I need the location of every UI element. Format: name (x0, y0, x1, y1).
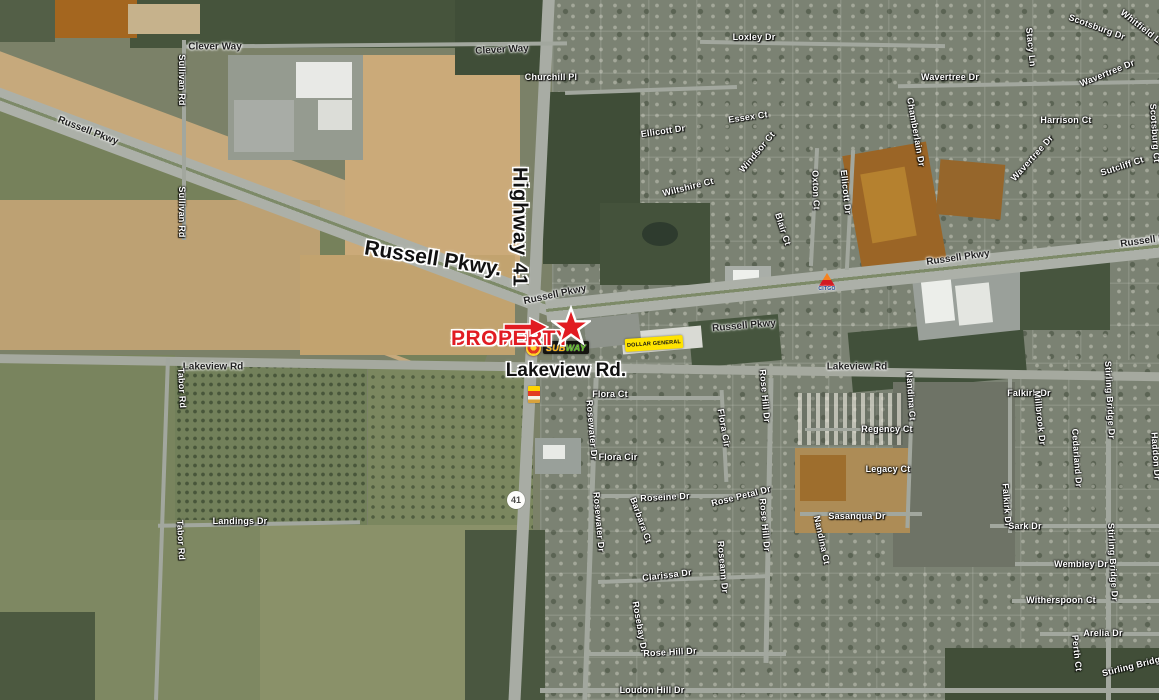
route-41-shield-number: 41 (511, 495, 521, 505)
street-label: Rose Hill Dr (758, 369, 773, 423)
street-label: Wavertree Dr (1009, 133, 1055, 183)
street-label: Oxton Ct (810, 170, 821, 210)
street-label: Flora Ct (592, 389, 628, 399)
street-label: Whitfield Ln (1119, 7, 1159, 48)
street-label: Russell Pkwy (926, 248, 991, 268)
street-label: Falkirk Dr (1007, 388, 1051, 398)
street-label: Lakeview Rd (183, 362, 244, 373)
street-label: Sullivan Rd (177, 186, 187, 237)
street-label: Perth Ct (1070, 634, 1084, 671)
street-label: Flora Cir (716, 408, 733, 448)
subject-arrow-icon (503, 317, 549, 337)
street-label: Chamberlain Dr (905, 97, 927, 168)
street-label: Ellicott Dr (839, 169, 854, 215)
street-label: Russell Pkwy (712, 318, 777, 335)
street-label: Flora Cir (599, 452, 638, 462)
street-label: Scotsburg Dr (1067, 12, 1126, 42)
street-label: Rosewater Dr (584, 399, 599, 460)
street-label: Tabor Rd (176, 368, 188, 409)
street-label: Essex Ct (728, 109, 769, 124)
citgo-triangle-icon (819, 273, 835, 286)
street-label: Ellicott Dr (640, 123, 686, 139)
street-label: Haddon Dr (1149, 432, 1159, 480)
street-label: Sark Dr (1008, 521, 1041, 531)
street-label: Wiltshire Ct (661, 176, 714, 198)
street-label: Clarissa Dr (642, 567, 693, 583)
subject-star-icon (551, 305, 591, 347)
citgo-logo: CITGO (812, 273, 842, 292)
lakeview-rd-annotation: Lakeview Rd. (506, 360, 626, 382)
street-label: Churchill Pl (525, 72, 577, 82)
street-label: Witherspoon Ct (1026, 595, 1096, 605)
street-label: Sasanqua Dr (828, 511, 885, 521)
route-41-shield: 41 (507, 491, 525, 509)
street-label: Rose Hill Dr (758, 498, 773, 552)
street-label: Sullivan Rd (177, 54, 187, 105)
street-label: Cedarland Dr (1070, 428, 1084, 487)
street-label: Landings Dr (213, 516, 268, 526)
street-label: Lakeview Rd (827, 362, 888, 373)
street-label: Stacy Ln (1024, 27, 1038, 67)
street-label: Tabor Rd (175, 520, 187, 561)
street-label: Regency Ct (861, 424, 913, 434)
street-label: Russell Pkwy (56, 114, 120, 147)
street-label: Nandina Ct (904, 371, 917, 421)
street-label: Harrison Ct (1040, 115, 1091, 125)
street-label: Scotsburg Ct (1148, 103, 1159, 162)
satellite-map[interactable]: Russell PkwyClever WayClever WaySullivan… (0, 0, 1159, 700)
street-label: Stirling Bridge Dr (1106, 523, 1120, 602)
street-label: Rose Hill Dr (643, 646, 697, 659)
street-label: Legacy Ct (866, 464, 911, 474)
street-label: Wavertree Dr (1078, 57, 1136, 88)
street-label: Blair Ct (773, 211, 793, 246)
street-label: Clever Way (188, 42, 242, 53)
street-label: Stirling Bridge Dr (1103, 361, 1117, 440)
street-label: Millbrook Dr (1032, 390, 1048, 446)
fuel-station-sign-logo (528, 386, 540, 403)
highway-41-annotation: Highway 41 (508, 167, 531, 287)
street-label: Wembley Dr (1054, 559, 1108, 569)
street-label: Wavertree Dr (921, 72, 979, 82)
street-label: Arelia Dr (1083, 628, 1122, 638)
street-label: Russell Pkwy (523, 283, 588, 307)
street-label: Windsor Ct (737, 130, 777, 175)
street-label: Loudon Hill Dr (620, 685, 685, 695)
citgo-label: CITGO (812, 286, 842, 292)
street-label: Stirling Bridge Dr (1101, 650, 1159, 679)
street-label: Rosebay Dr (631, 601, 650, 654)
street-label: Russell Pkwy (1120, 230, 1159, 250)
street-label: Nandina Ct (812, 515, 832, 566)
street-label: Roseann Dr (716, 540, 731, 593)
street-label: Rosewater Dr (591, 491, 606, 552)
street-label: Loxley Dr (733, 32, 776, 42)
street-label: Clever Way (475, 43, 529, 57)
street-label: Sutcliff Ct (1099, 154, 1145, 177)
street-label: Roseine Dr (640, 491, 690, 504)
